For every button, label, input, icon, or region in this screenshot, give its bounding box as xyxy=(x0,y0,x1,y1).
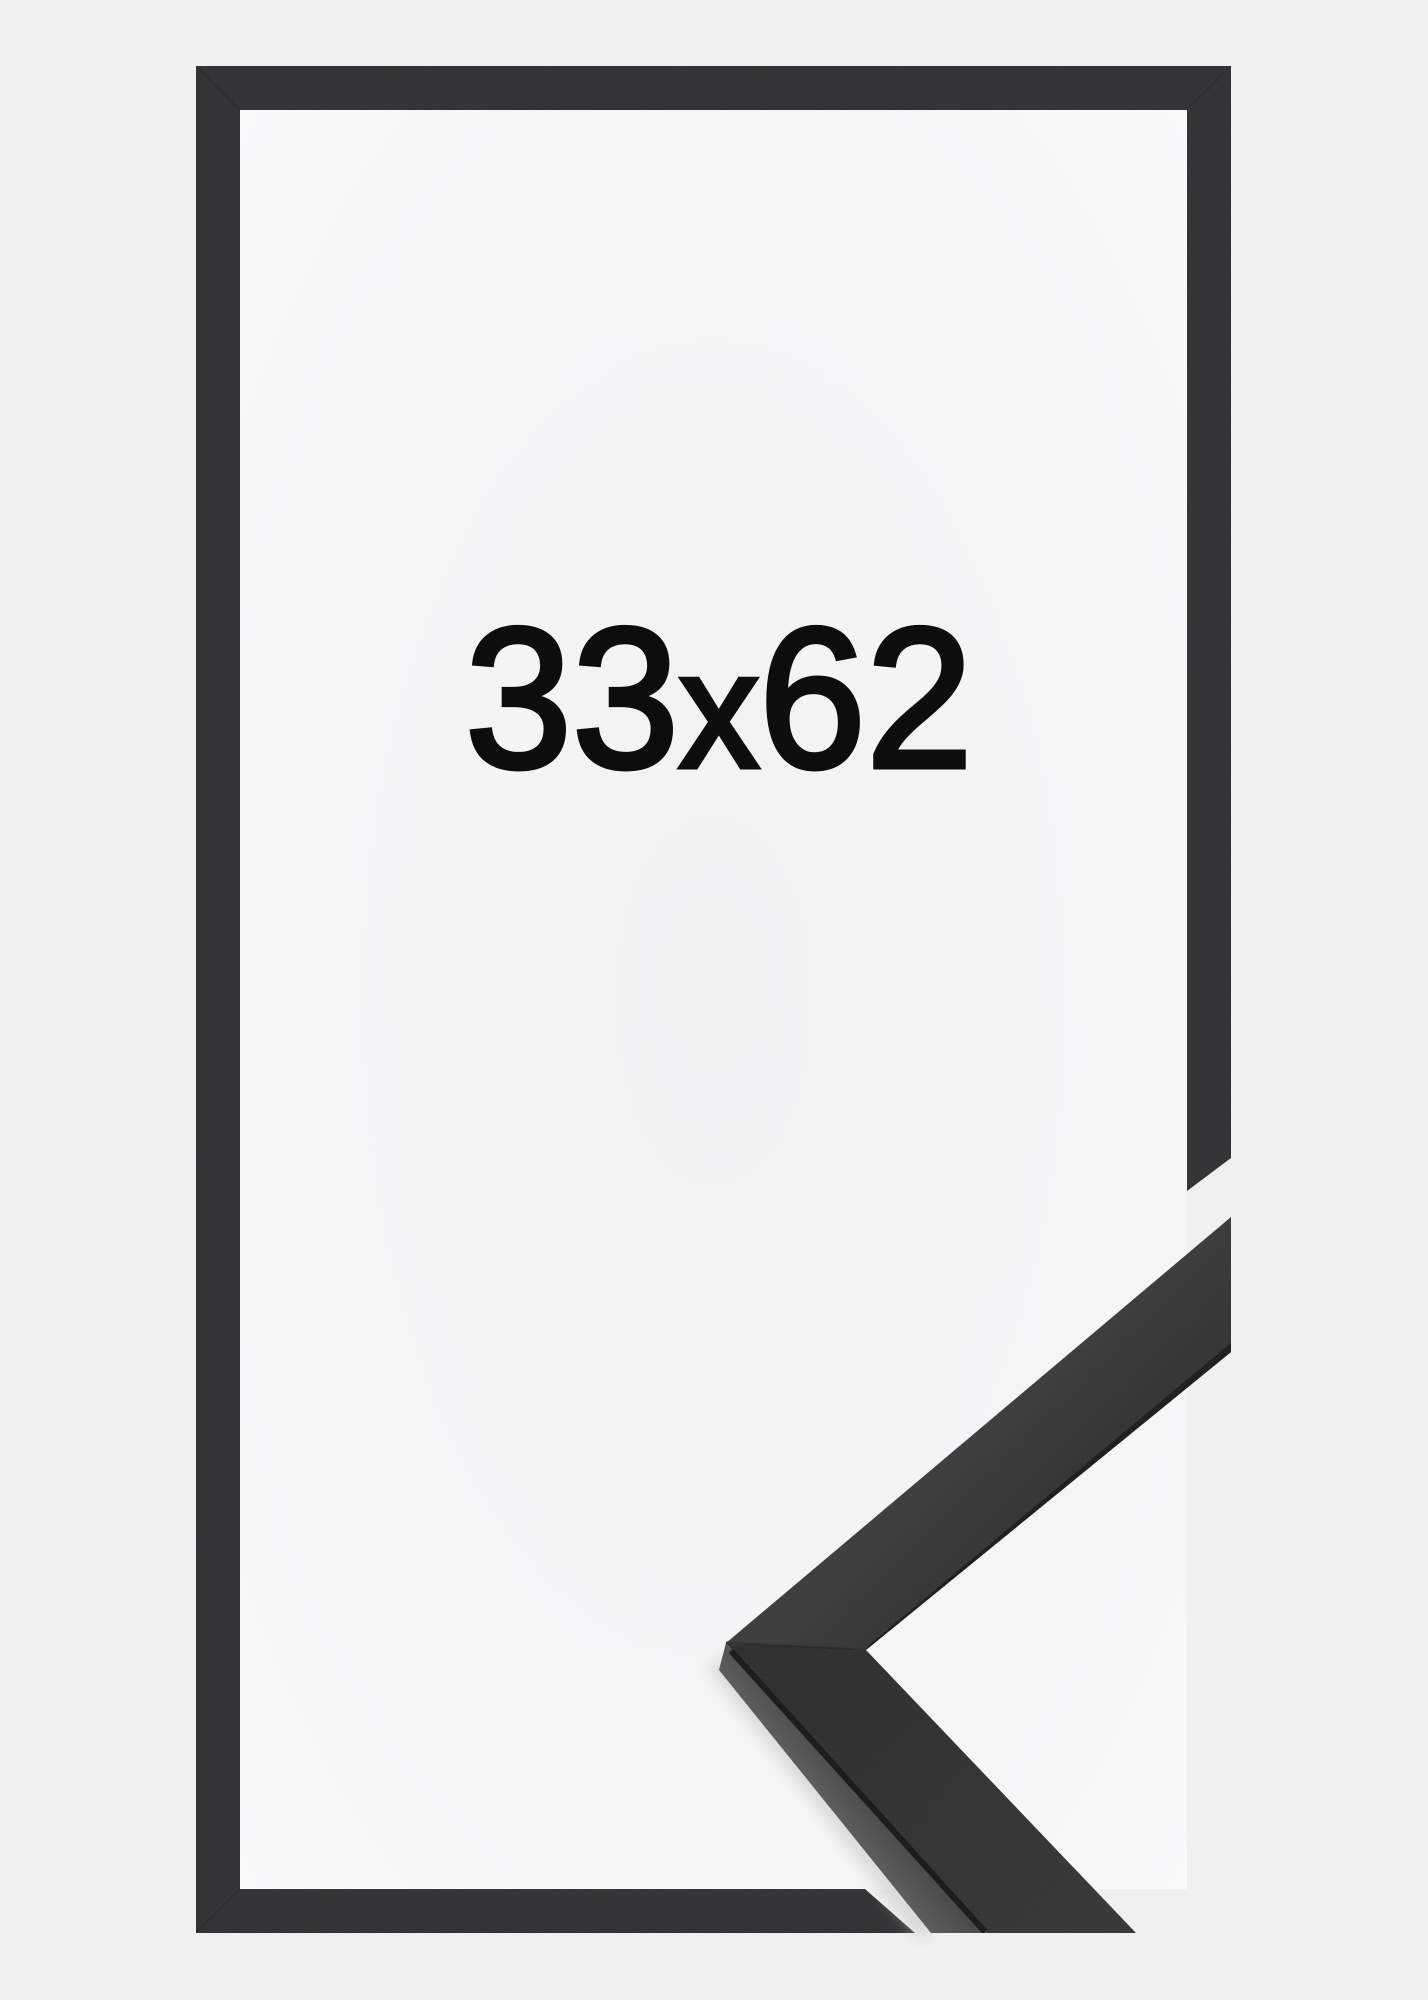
svg-text:33x62: 33x62 xyxy=(465,587,973,810)
